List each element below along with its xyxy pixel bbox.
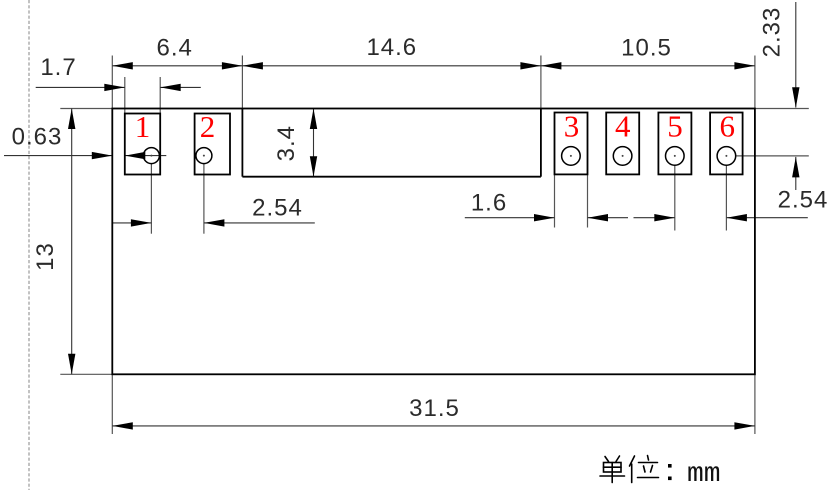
- svg-text:2.54: 2.54: [252, 195, 303, 222]
- svg-text:1.7: 1.7: [40, 54, 76, 81]
- svg-text:13: 13: [32, 242, 59, 271]
- svg-text:1.6: 1.6: [471, 190, 507, 217]
- svg-text:2.54: 2.54: [778, 187, 829, 214]
- svg-text:2: 2: [200, 109, 216, 144]
- svg-text:4: 4: [615, 109, 631, 144]
- svg-text:3: 3: [564, 109, 580, 144]
- svg-text:mm: mm: [687, 459, 721, 490]
- svg-text:6.4: 6.4: [157, 35, 193, 62]
- svg-text:6: 6: [720, 109, 736, 144]
- svg-text:3.4: 3.4: [273, 125, 300, 161]
- svg-text:5: 5: [667, 109, 683, 144]
- svg-text:14.6: 14.6: [366, 34, 417, 61]
- svg-text:1: 1: [135, 109, 151, 144]
- svg-text:2.33: 2.33: [759, 7, 786, 58]
- svg-text:10.5: 10.5: [621, 35, 672, 62]
- svg-text:0.63: 0.63: [12, 124, 63, 151]
- svg-text:31.5: 31.5: [409, 395, 460, 422]
